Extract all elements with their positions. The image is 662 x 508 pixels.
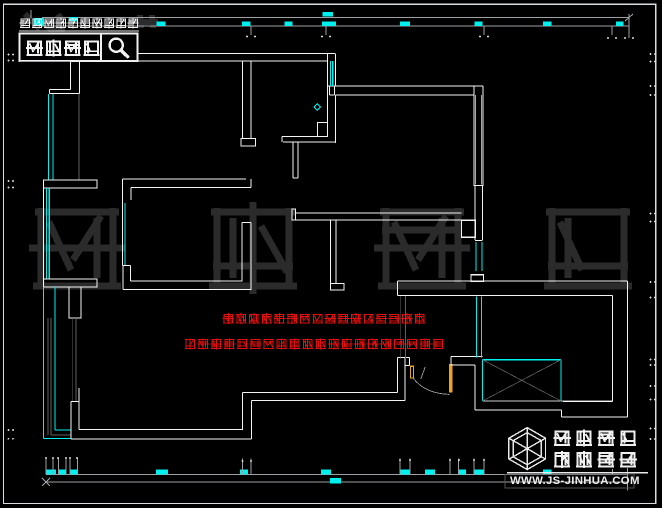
svg-text:WWW.JS-JINHUA.COM: WWW.JS-JINHUA.COM — [510, 475, 640, 487]
